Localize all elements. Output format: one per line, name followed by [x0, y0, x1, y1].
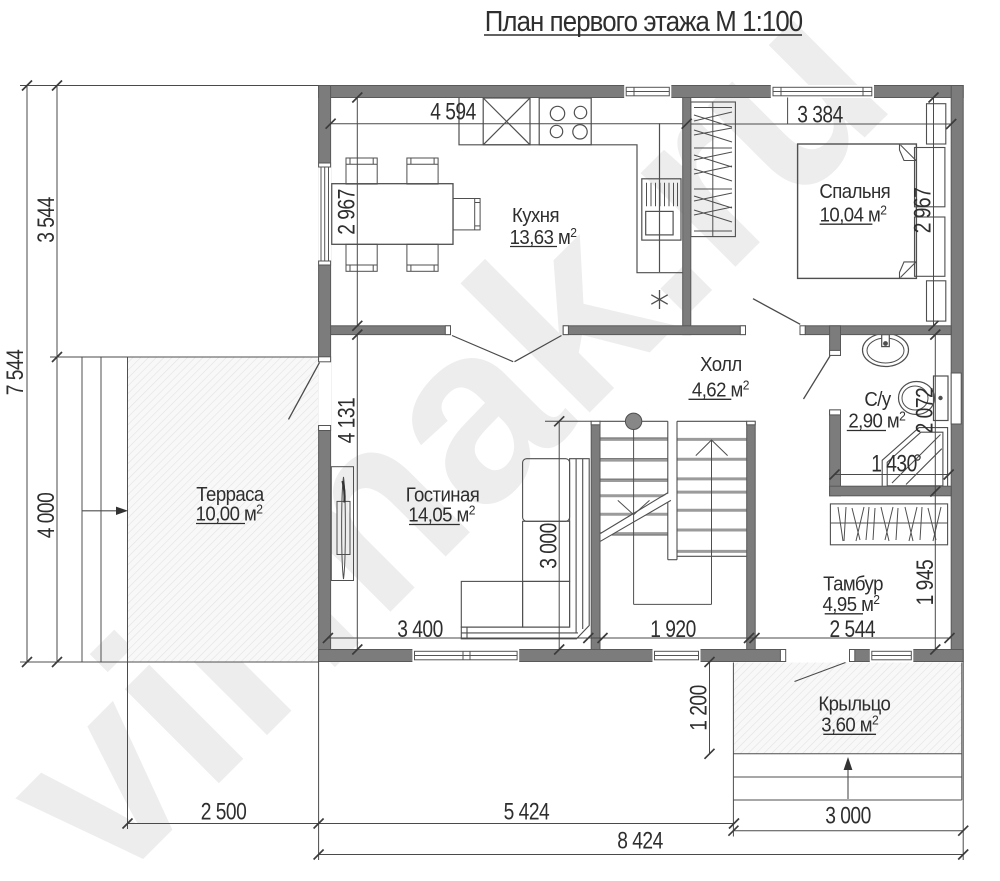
svg-text:5 424: 5 424 — [504, 797, 550, 825]
svg-text:4 594: 4 594 — [430, 97, 476, 125]
svg-text:2 967: 2 967 — [908, 188, 936, 234]
svg-text:1 430: 1 430 — [871, 449, 917, 477]
svg-text:1 945: 1 945 — [911, 559, 939, 605]
svg-text:8 424: 8 424 — [617, 826, 663, 854]
svg-text:2 544: 2 544 — [829, 615, 875, 643]
svg-text:С/у: С/у — [864, 389, 891, 411]
svg-text:Спальня: Спальня — [819, 182, 890, 204]
svg-text:Терраса: Терраса — [196, 484, 264, 506]
svg-text:3 544: 3 544 — [32, 197, 60, 243]
svg-text:2 500: 2 500 — [201, 797, 247, 825]
svg-text:3 000: 3 000 — [825, 802, 871, 830]
svg-text:2,90 м2: 2,90 м2 — [848, 409, 906, 433]
svg-text:Крыльцо: Крыльцо — [818, 694, 890, 716]
svg-text:3 384: 3 384 — [797, 100, 843, 128]
svg-text:14,05 м2: 14,05 м2 — [408, 503, 475, 527]
svg-text:3,60 м2: 3,60 м2 — [821, 713, 879, 737]
svg-text:План первого этажа М 1:100: План первого этажа М 1:100 — [485, 5, 803, 38]
svg-text:4 131: 4 131 — [332, 397, 360, 443]
svg-text:3 000: 3 000 — [534, 523, 562, 569]
svg-text:1 200: 1 200 — [684, 685, 712, 731]
svg-text:13,63 м2: 13,63 м2 — [510, 226, 577, 250]
svg-text:7 544: 7 544 — [1, 349, 29, 395]
svg-text:1 920: 1 920 — [650, 615, 696, 643]
svg-text:10,00 м2: 10,00 м2 — [196, 502, 263, 526]
svg-text:Кухня: Кухня — [512, 205, 559, 227]
svg-text:10,04 м2: 10,04 м2 — [820, 203, 887, 227]
svg-text:2 967: 2 967 — [332, 189, 360, 235]
svg-text:Холл: Холл — [700, 354, 742, 376]
svg-text:2 072: 2 072 — [910, 388, 938, 434]
svg-text:4,95 м2: 4,95 м2 — [823, 593, 881, 617]
svg-text:4 000: 4 000 — [32, 492, 60, 538]
svg-text:3 400: 3 400 — [397, 615, 443, 643]
svg-text:4,62 м2: 4,62 м2 — [692, 378, 750, 402]
